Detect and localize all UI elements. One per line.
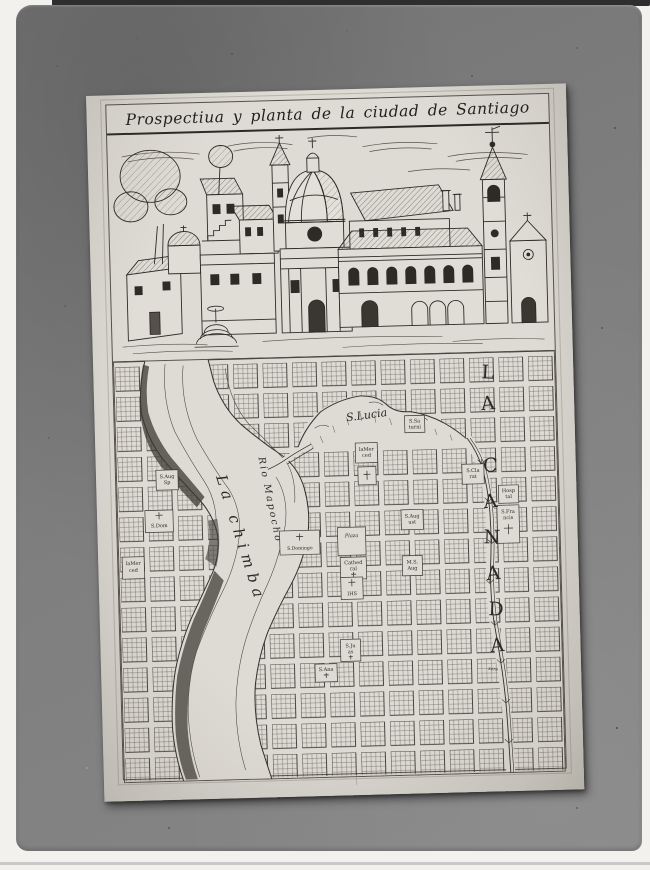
ground-hatching <box>122 332 544 354</box>
block-label: ced <box>129 568 139 574</box>
block-label: as <box>348 649 354 655</box>
block-label: ncis <box>503 515 514 521</box>
block-label: Aug <box>406 565 418 571</box>
block-label: ral <box>350 566 358 572</box>
canada-letter: C <box>482 454 497 477</box>
canada-letter: D <box>488 598 504 621</box>
basilica <box>338 228 484 328</box>
engraved-plate: Prospectiua y planta de la ciudad de San… <box>105 93 567 780</box>
canada-letter: L <box>481 361 495 384</box>
right-church <box>509 212 548 323</box>
block-label: ced <box>362 453 372 459</box>
block-label: IHS <box>347 591 357 597</box>
block-label: rat <box>469 474 477 480</box>
mat-speckles <box>16 5 18 7</box>
canada-letter: A <box>479 392 496 415</box>
cross-icon <box>485 126 500 142</box>
canada-letter: N <box>483 526 500 548</box>
block-label: laMer <box>126 561 142 567</box>
canada-letter: A <box>481 490 498 513</box>
dome-lantern <box>307 158 319 172</box>
cross-icon <box>275 135 283 143</box>
block-label: Plaza <box>344 533 359 539</box>
block-plaza <box>337 527 366 556</box>
map-title: Prospectiua y planta de la ciudad de San… <box>125 98 530 129</box>
block-label: turni <box>408 424 421 430</box>
canada-letter: A <box>489 634 506 657</box>
block-label: ust <box>408 520 416 526</box>
block-label: S.Domingo <box>287 545 313 552</box>
canada-letter: A <box>484 562 501 585</box>
sky-cloud-hatching <box>121 130 528 179</box>
city-plan-map: S.Lucia La chimba Rio Mapoch <box>113 350 566 783</box>
city-view-engraving <box>107 124 555 357</box>
cross-icon <box>308 138 316 148</box>
print-paper: Prospectiua y planta de la ciudad de San… <box>86 83 584 801</box>
block-label: S.Ana <box>319 667 334 673</box>
apse-dome <box>167 225 200 274</box>
photo-bottom-edge <box>0 862 650 865</box>
cross-icon <box>180 225 186 231</box>
block-label: Sp <box>164 480 171 486</box>
cross-icon <box>523 212 531 220</box>
block-label: S.Dom <box>151 523 168 529</box>
block-label: tal <box>505 494 512 500</box>
